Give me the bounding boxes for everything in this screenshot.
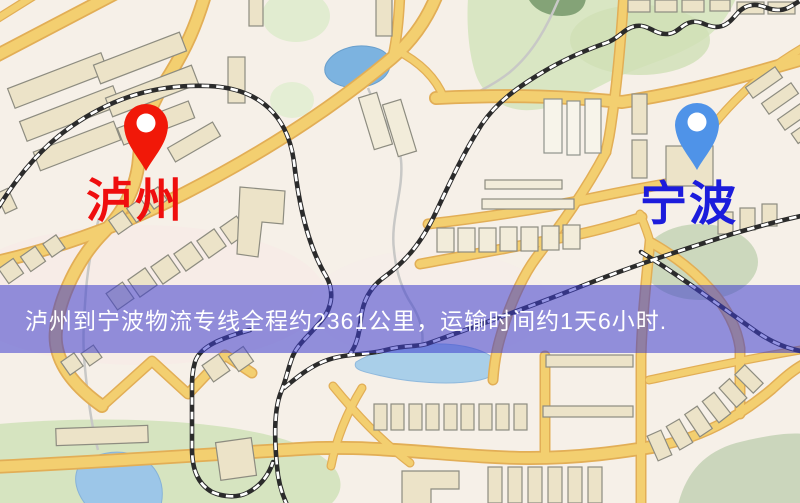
origin-city-label: 泸州 xyxy=(86,177,184,224)
origin-pin-icon xyxy=(122,101,170,173)
destination-city-label: 宁波 xyxy=(640,180,738,227)
pin-hole xyxy=(137,114,156,133)
destination-pin-icon xyxy=(673,100,721,172)
pin-hole xyxy=(688,113,707,132)
route-info-banner: 泸州到宁波物流专线全程约2361公里，运输时间约1天6小时. xyxy=(0,285,800,353)
map-canvas: 泸州到宁波物流专线全程约2361公里，运输时间约1天6小时. 泸州 宁波 xyxy=(0,0,800,503)
map-image xyxy=(0,0,800,503)
route-info-text: 泸州到宁波物流专线全程约2361公里，运输时间约1天6小时. xyxy=(0,302,667,336)
